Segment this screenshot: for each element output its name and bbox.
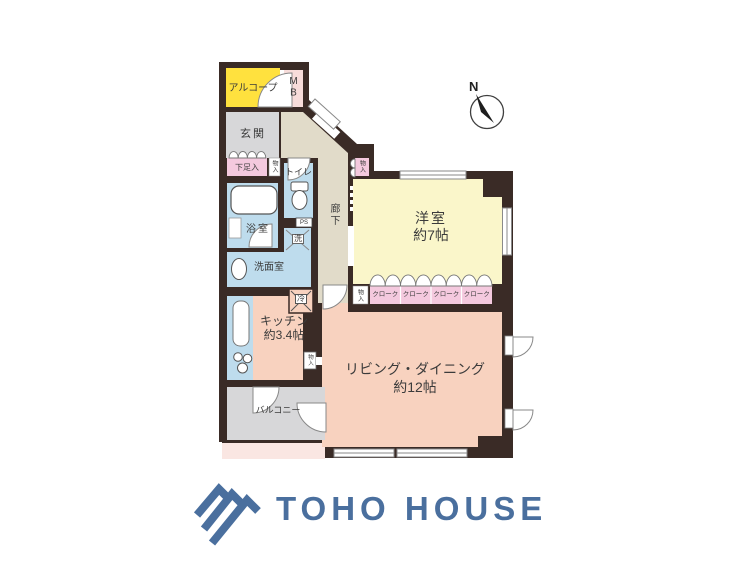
living-right-door-arc-1 <box>513 337 533 357</box>
label-cloak-4: クローク <box>462 291 493 298</box>
toilet-tank <box>291 182 308 191</box>
label-shoe-box: 下足入 <box>227 163 267 172</box>
label-hallway: 廊下 <box>328 203 338 227</box>
stove-burner-3 <box>238 363 248 373</box>
label-kitchen: キッチン <box>250 315 318 329</box>
floorplan-drawing <box>0 0 750 563</box>
label-washer: 洗 <box>292 234 304 244</box>
toho-house-logo-text: TOHO HOUSE <box>276 492 547 525</box>
label-cloak-3: クローク <box>431 291 462 298</box>
label-meter-box: MB <box>288 76 298 99</box>
label-bedroom: 洋室 <box>395 210 467 226</box>
label-storage-cloak: 物入 <box>357 289 363 302</box>
label-balcony: バルコニー <box>247 405 309 415</box>
kitchen-sink <box>233 301 249 346</box>
stove-burner-2 <box>243 354 252 363</box>
compass-north-label: N <box>469 80 478 95</box>
label-toilet: トイレ <box>284 167 313 177</box>
living-right-door-leaf-1 <box>505 336 513 355</box>
wall-kitchen-bottom <box>219 380 325 387</box>
powder-sink <box>232 259 247 280</box>
label-living: リビング・ダイニング <box>343 361 487 377</box>
bedroom-hatch-4 <box>350 207 353 211</box>
label-powder-room: 洗面室 <box>248 262 290 274</box>
stove-burner-1 <box>234 353 243 362</box>
label-storage-hall: 物入 <box>359 160 365 173</box>
toilet-bowl <box>292 191 307 210</box>
storage-kitchen-notch <box>316 357 322 365</box>
label-kitchen-size: 約3.4帖 <box>250 329 318 343</box>
living-right-door-leaf-2 <box>505 409 513 428</box>
bedroom-hatch-2 <box>350 193 353 197</box>
label-entrance: 玄関 <box>228 128 278 141</box>
wall-balcony-left <box>219 380 227 442</box>
compass <box>471 94 504 129</box>
bathtub <box>231 186 277 214</box>
label-pipe-space: PS <box>297 220 311 227</box>
bath-counter <box>229 218 241 238</box>
label-storage-kitchen: 物入 <box>307 354 313 366</box>
outside-walkway-strip <box>222 443 325 459</box>
living-right-door-arc-2 <box>513 410 533 430</box>
balcony-rail <box>222 440 325 443</box>
label-storage-entry: 物入 <box>271 160 277 173</box>
label-bedroom-size: 約7帖 <box>395 227 467 243</box>
floorplan-canvas: アルコープ MB 玄関 下足入 物入 トイレ 浴室 洗 洗面室 廊下 PS 物入… <box>0 0 750 563</box>
bedroom-hatch-1 <box>350 186 353 190</box>
label-cloak-2: クローク <box>401 291 432 298</box>
label-bath: 浴室 <box>241 224 275 236</box>
label-alcove: アルコープ <box>226 83 280 95</box>
toho-house-logo-mark <box>197 489 258 543</box>
label-fridge: 冷 <box>295 294 307 304</box>
label-living-size: 約12帖 <box>343 379 487 395</box>
label-cloak-1: クローク <box>370 291 401 298</box>
bedroom-sliding-door <box>348 226 354 266</box>
bedroom-hatch-3 <box>350 200 353 204</box>
